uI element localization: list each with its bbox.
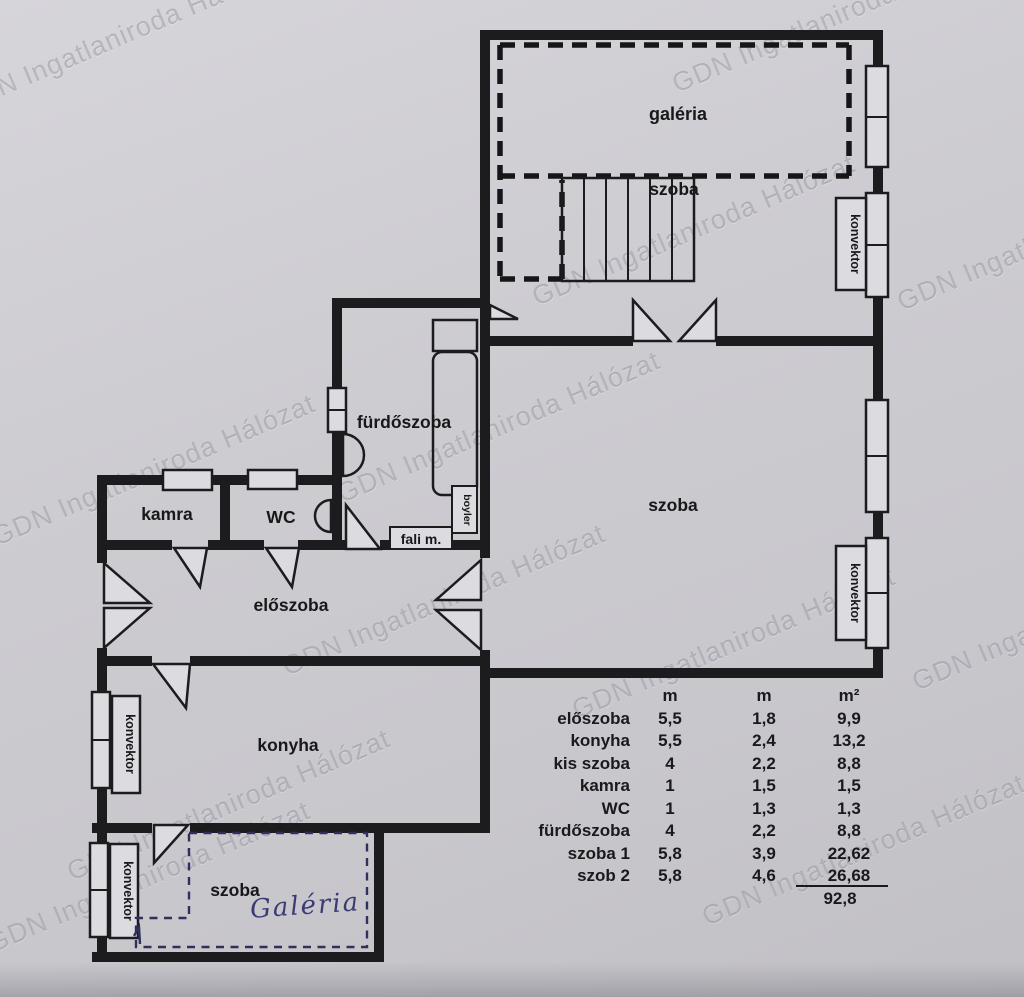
door-swing-icon: [633, 300, 670, 341]
room-label-kamra: kamra: [141, 504, 193, 524]
konvektor-label: konvektor: [848, 214, 862, 274]
door-swing-icon: [346, 505, 380, 549]
row-name: WC: [500, 798, 630, 821]
row-m2: 1,8: [710, 708, 818, 731]
area-table-header: m m m²: [500, 685, 884, 708]
table-row: kamra 1 1,5 1,5: [500, 775, 884, 798]
row-m1: 5,5: [630, 708, 710, 731]
row-area: 8,8: [818, 820, 880, 843]
row-name: kamra: [500, 775, 630, 798]
row-name: kis szoba: [500, 753, 630, 776]
row-name: fürdőszoba: [500, 820, 630, 843]
window-icon: [328, 388, 346, 432]
table-row: szoba 1 5,8 3,9 22,62: [500, 843, 884, 866]
area-table: m m m² előszoba 5,5 1,8 9,9 konyha 5,5 2…: [500, 685, 884, 888]
fali-m-label: fali m.: [401, 531, 441, 547]
room-label-szoba-main: szoba: [648, 495, 698, 515]
window-icon: [866, 400, 888, 512]
door-swing-icon: [174, 548, 207, 587]
room-label-galeria: galéria: [649, 104, 708, 124]
row-m1: 5,5: [630, 730, 710, 753]
row-m2: 3,9: [710, 843, 818, 866]
table-total-rule: [796, 885, 888, 887]
row-area: 22,62: [818, 843, 880, 866]
konvektor-label: konvektor: [848, 563, 862, 623]
row-m1: 4: [630, 820, 710, 843]
washbasin-icon: [343, 434, 364, 476]
row-m2: 2,4: [710, 730, 818, 753]
konvektor-box: konvektor: [836, 546, 866, 640]
table-row: WC 1 1,3 1,3: [500, 798, 884, 821]
room-label-wc: WC: [266, 507, 296, 527]
row-m1: 1: [630, 775, 710, 798]
row-m2: 2,2: [710, 753, 818, 776]
row-m1: 5,8: [630, 865, 710, 888]
row-m1: 5,8: [630, 843, 710, 866]
sink-icon: [433, 320, 477, 351]
window-icon: [866, 538, 888, 648]
room-label-eloszoba: előszoba: [254, 595, 329, 615]
door-swing-icon: [436, 610, 481, 650]
table-row: kis szoba 4 2,2 8,8: [500, 753, 884, 776]
door-swing-icon: [490, 305, 518, 319]
row-name: előszoba: [500, 708, 630, 731]
window-icon: [248, 470, 297, 489]
floorplan-scan: GDN Ingatlaniroda Hálózat GDN Ingatlanir…: [0, 0, 1024, 997]
window-icon: [90, 843, 108, 937]
row-m2: 2,2: [710, 820, 818, 843]
room-label-szoba-upper: szoba: [649, 179, 699, 199]
door-swing-icon: [679, 300, 716, 341]
table-row: előszoba 5,5 1,8 9,9: [500, 708, 884, 731]
window-icon: [866, 193, 888, 297]
table-row: konyha 5,5 2,4 13,2: [500, 730, 884, 753]
row-area: 1,5: [818, 775, 880, 798]
row-m2: 1,3: [710, 798, 818, 821]
door-swing-icon: [436, 560, 481, 600]
boyler-box: boyler: [452, 486, 477, 533]
table-row: fürdőszoba 4 2,2 8,8: [500, 820, 884, 843]
konvektor-box: konvektor: [110, 844, 138, 938]
toilet-icon: [315, 500, 331, 532]
window-icon: [92, 692, 110, 788]
window-icon: [866, 66, 888, 167]
fali-m-box: fali m.: [390, 527, 452, 549]
boyler-label: boyler: [461, 494, 473, 526]
konvektor-label: konvektor: [123, 714, 137, 774]
room-label-konyha: konyha: [257, 735, 319, 755]
door-swing-icon: [153, 664, 190, 708]
row-area: 8,8: [818, 753, 880, 776]
window-icon: [163, 470, 212, 490]
scan-bottom-shadow: [0, 962, 1024, 997]
col-header-m2: m: [710, 685, 818, 708]
table-total-value: 92,8: [800, 889, 880, 909]
row-m1: 4: [630, 753, 710, 776]
door-swing-icon: [104, 608, 150, 648]
konvektor-label: konvektor: [121, 861, 135, 921]
row-name: szob 2: [500, 865, 630, 888]
col-header-m1: m: [630, 685, 710, 708]
konvektor-box: konvektor: [836, 198, 866, 290]
row-m2: 1,5: [710, 775, 818, 798]
door-swing-icon: [266, 548, 299, 587]
row-m1: 1: [630, 798, 710, 821]
door-swing-icon: [104, 563, 150, 603]
col-header-m2sq: m²: [818, 685, 880, 708]
row-name: konyha: [500, 730, 630, 753]
konvektor-box: konvektor: [112, 696, 140, 793]
door-swing-icon: [154, 825, 188, 863]
row-area: 1,3: [818, 798, 880, 821]
galeria-dashed-outline: [500, 45, 849, 279]
row-name: szoba 1: [500, 843, 630, 866]
room-label-furdoszoba: fürdőszoba: [357, 412, 452, 432]
row-area: 9,9: [818, 708, 880, 731]
row-area: 13,2: [818, 730, 880, 753]
